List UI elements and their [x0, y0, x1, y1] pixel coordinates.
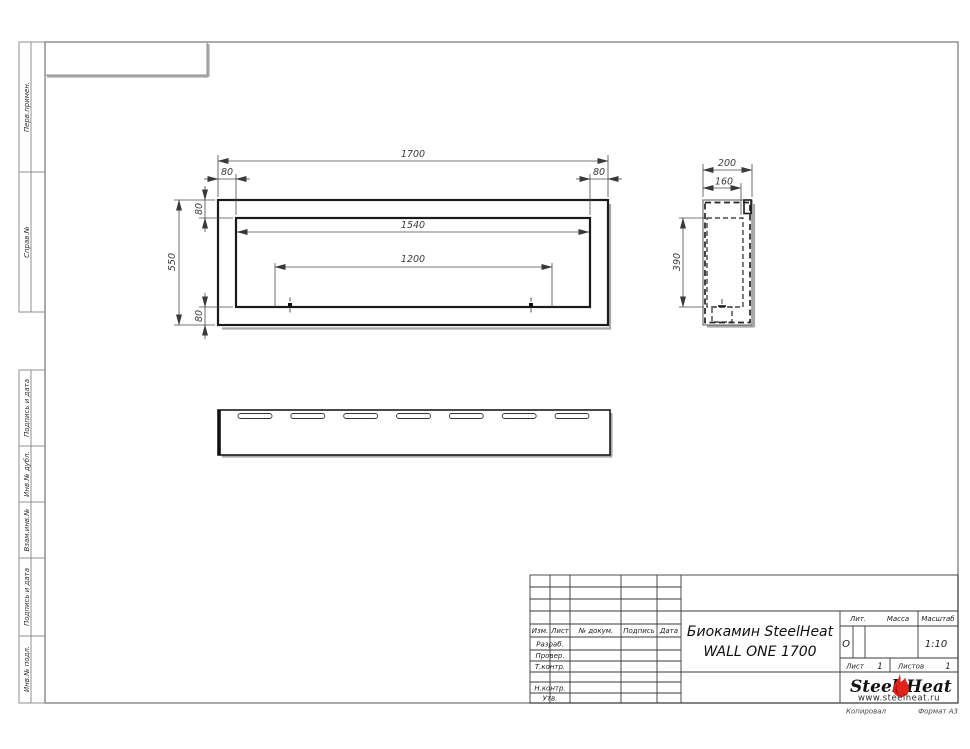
- gost-drawing-svg: Перв.примен. Справ.№ Подпись и дата Инв.…: [0, 0, 970, 749]
- side-view-dimensions: 200 160 390: [672, 158, 752, 307]
- steelheat-logo: Steel Heat www.steelheat.ru: [850, 674, 952, 704]
- dim-front-margin-top: 80: [194, 203, 205, 215]
- stamp-label-vzam-inv: Взам.инв.№: [23, 508, 31, 551]
- drawing-sheet: Перв.примен. Справ.№ Подпись и дата Инв.…: [0, 0, 970, 749]
- tb-row-tkontr: Т.контр.: [535, 663, 565, 671]
- tb-scale-value: 1:10: [925, 639, 947, 650]
- stamp-label-podpis-data-2: Подпись и дата: [23, 568, 31, 626]
- vent-slots: [238, 414, 589, 419]
- tb-lit-value: О: [842, 639, 850, 650]
- stamp-label-inv-podl: Инв.№ подл.: [23, 646, 31, 692]
- hole-mark-right: [529, 298, 533, 313]
- sheet-frame: [45, 42, 958, 703]
- dim-front-total-width: 1700: [401, 149, 425, 160]
- stamp-label-inv-dubl: Инв.№ дубл.: [23, 451, 31, 497]
- hole-mark-left: [288, 298, 292, 313]
- tb-mass-label: Масса: [887, 615, 909, 623]
- footer-copied-label: Копировал: [846, 708, 887, 716]
- dim-front-margin-right: 80: [593, 167, 605, 178]
- bottom-view: [218, 410, 612, 457]
- dim-side-inner-height: 390: [672, 253, 683, 271]
- stamp-label-perv-primen: Перв.примен.: [23, 82, 31, 132]
- tb-row-prover: Провер.: [535, 652, 564, 660]
- dim-side-inner-depth: 160: [715, 177, 733, 188]
- dim-side-depth: 200: [718, 158, 736, 169]
- doc-title-line2: WALL ONE 1700: [703, 644, 816, 660]
- left-stamp-column-top: Перв.примен. Справ.№: [19, 42, 45, 312]
- tb-col-sign: Подпись: [623, 627, 655, 635]
- dim-front-total-height: 550: [167, 253, 178, 271]
- tb-col-list: Лист: [550, 627, 570, 635]
- dim-front-margin-bottom: 80: [194, 310, 205, 322]
- logo-url: www.steelheat.ru: [858, 694, 940, 704]
- tb-scale-label: Масштаб: [921, 615, 955, 623]
- tb-lit-label: Лит.: [849, 615, 866, 623]
- frame-footer: Копировал Формат А3: [846, 708, 958, 716]
- title-block: Изм. Лист № докум. Подпись Дата Разраб. …: [530, 575, 958, 704]
- tb-sheet-label: Лист: [845, 663, 865, 671]
- tb-col-date: Дата: [659, 627, 678, 635]
- dim-front-margin-left: 80: [221, 167, 233, 178]
- footer-format-label: Формат А3: [918, 708, 958, 716]
- top-left-stamp-box: [45, 42, 209, 77]
- tb-sheets-label: Листов: [897, 663, 924, 671]
- stamp-label-sprav-no: Справ.№: [23, 226, 31, 258]
- tb-row-nkontr: Н.контр.: [534, 685, 565, 693]
- side-view: [703, 200, 754, 327]
- tb-sheets-value: 1: [945, 662, 950, 672]
- tb-row-utv: Утв.: [543, 695, 558, 703]
- dim-front-inner-width: 1540: [401, 220, 425, 231]
- tb-sheet-value: 1: [877, 662, 882, 672]
- left-stamp-column-bottom: Подпись и дата Инв.№ дубл. Взам.инв.№ По…: [19, 370, 45, 703]
- doc-title-line1: Биокамин SteelHeat: [687, 624, 834, 640]
- stamp-label-podpis-data-1: Подпись и дата: [23, 379, 31, 437]
- tb-col-doc: № докум.: [578, 627, 614, 635]
- tb-col-izm: Изм.: [532, 627, 548, 635]
- dim-front-slot-span: 1200: [401, 254, 425, 265]
- side-view-burner-box: [712, 299, 732, 322]
- tb-row-razrab: Разраб.: [536, 641, 564, 649]
